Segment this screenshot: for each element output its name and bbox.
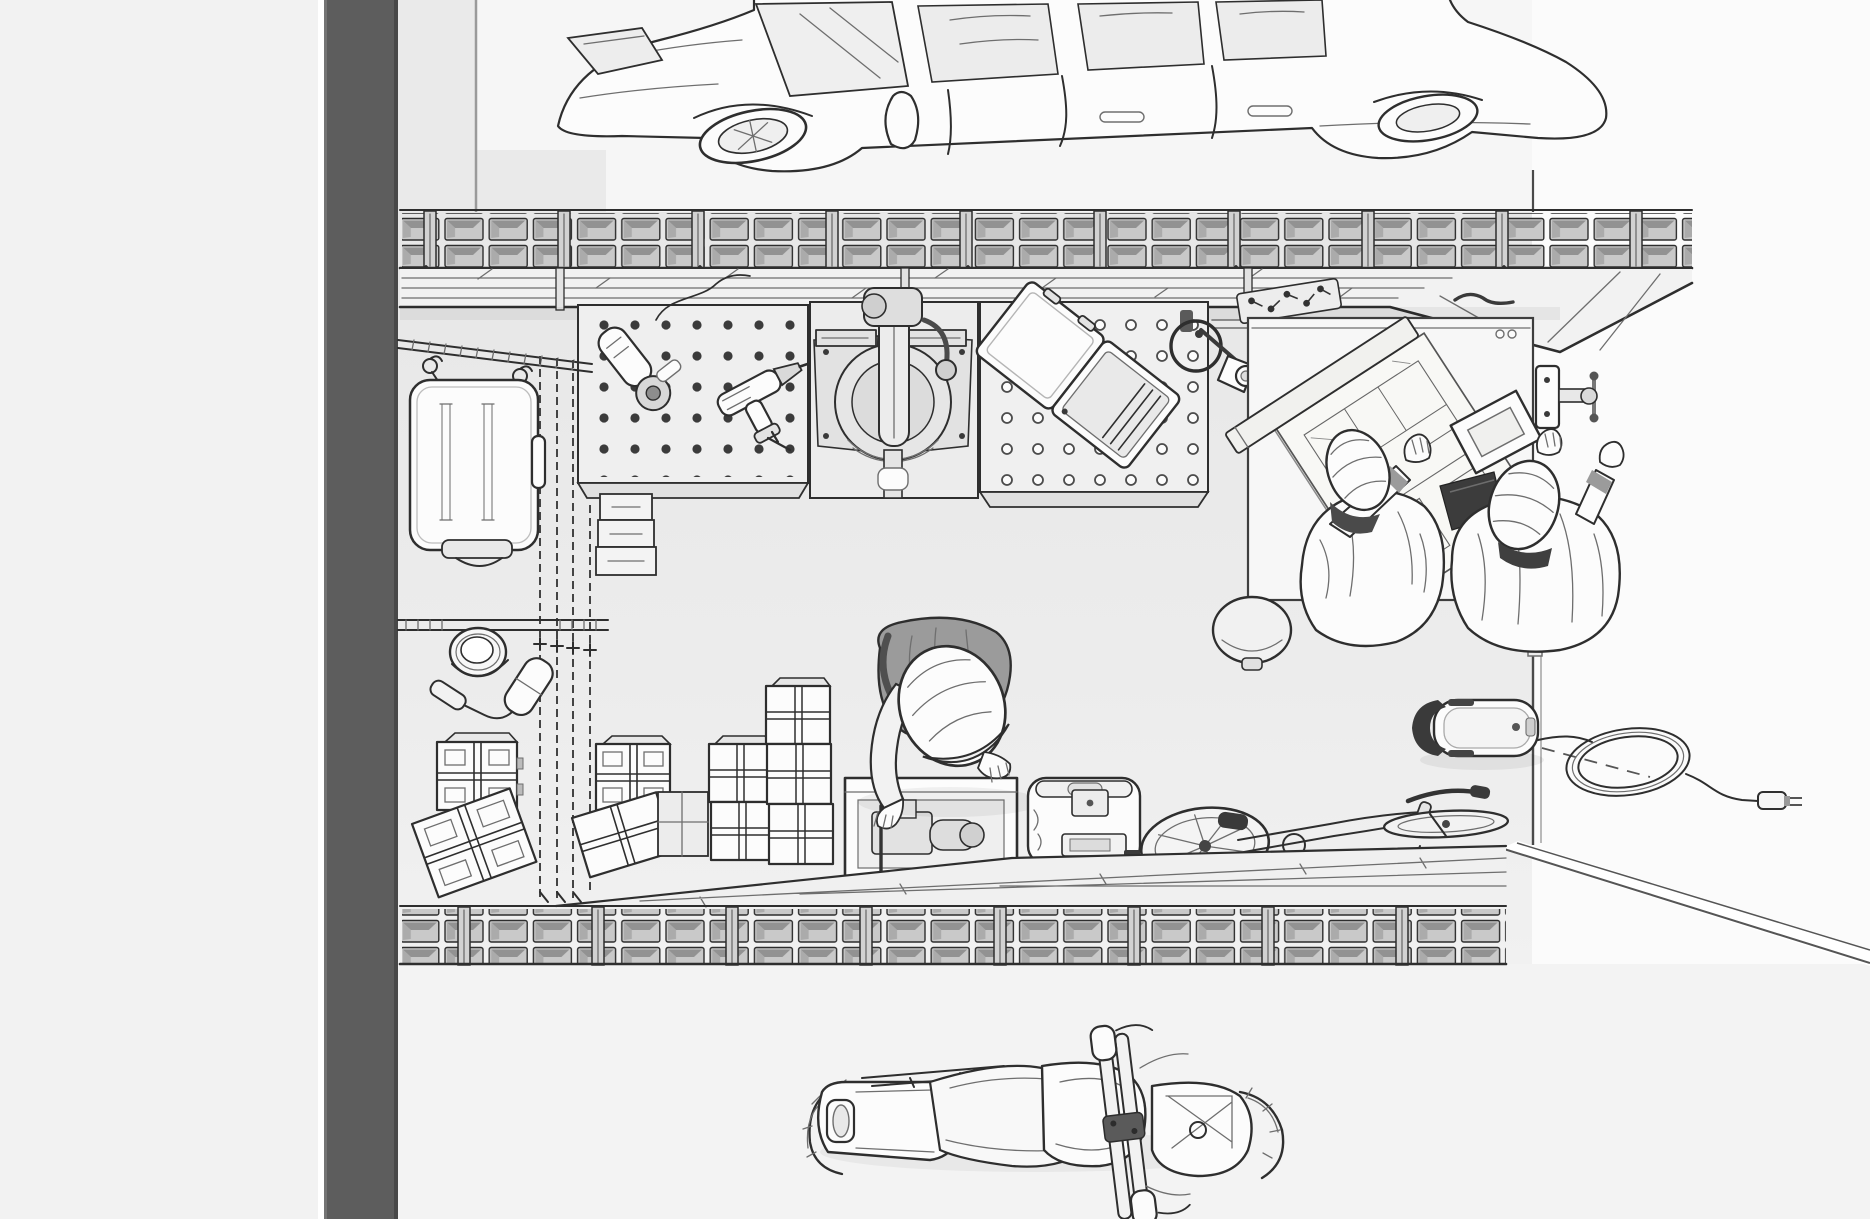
top-storage-rack bbox=[400, 210, 1692, 274]
step-drawers bbox=[596, 494, 656, 575]
generator-case bbox=[1028, 778, 1140, 864]
pegboard-bench-left bbox=[578, 275, 844, 498]
garage-illustration: Garage workshop — top-down technical lin… bbox=[0, 0, 1870, 1219]
scene-svg: Garage workshop — top-down technical lin… bbox=[0, 0, 1870, 1219]
miter-saw bbox=[810, 288, 978, 498]
paint-can bbox=[450, 628, 508, 676]
hanging-tool-case bbox=[410, 380, 545, 566]
